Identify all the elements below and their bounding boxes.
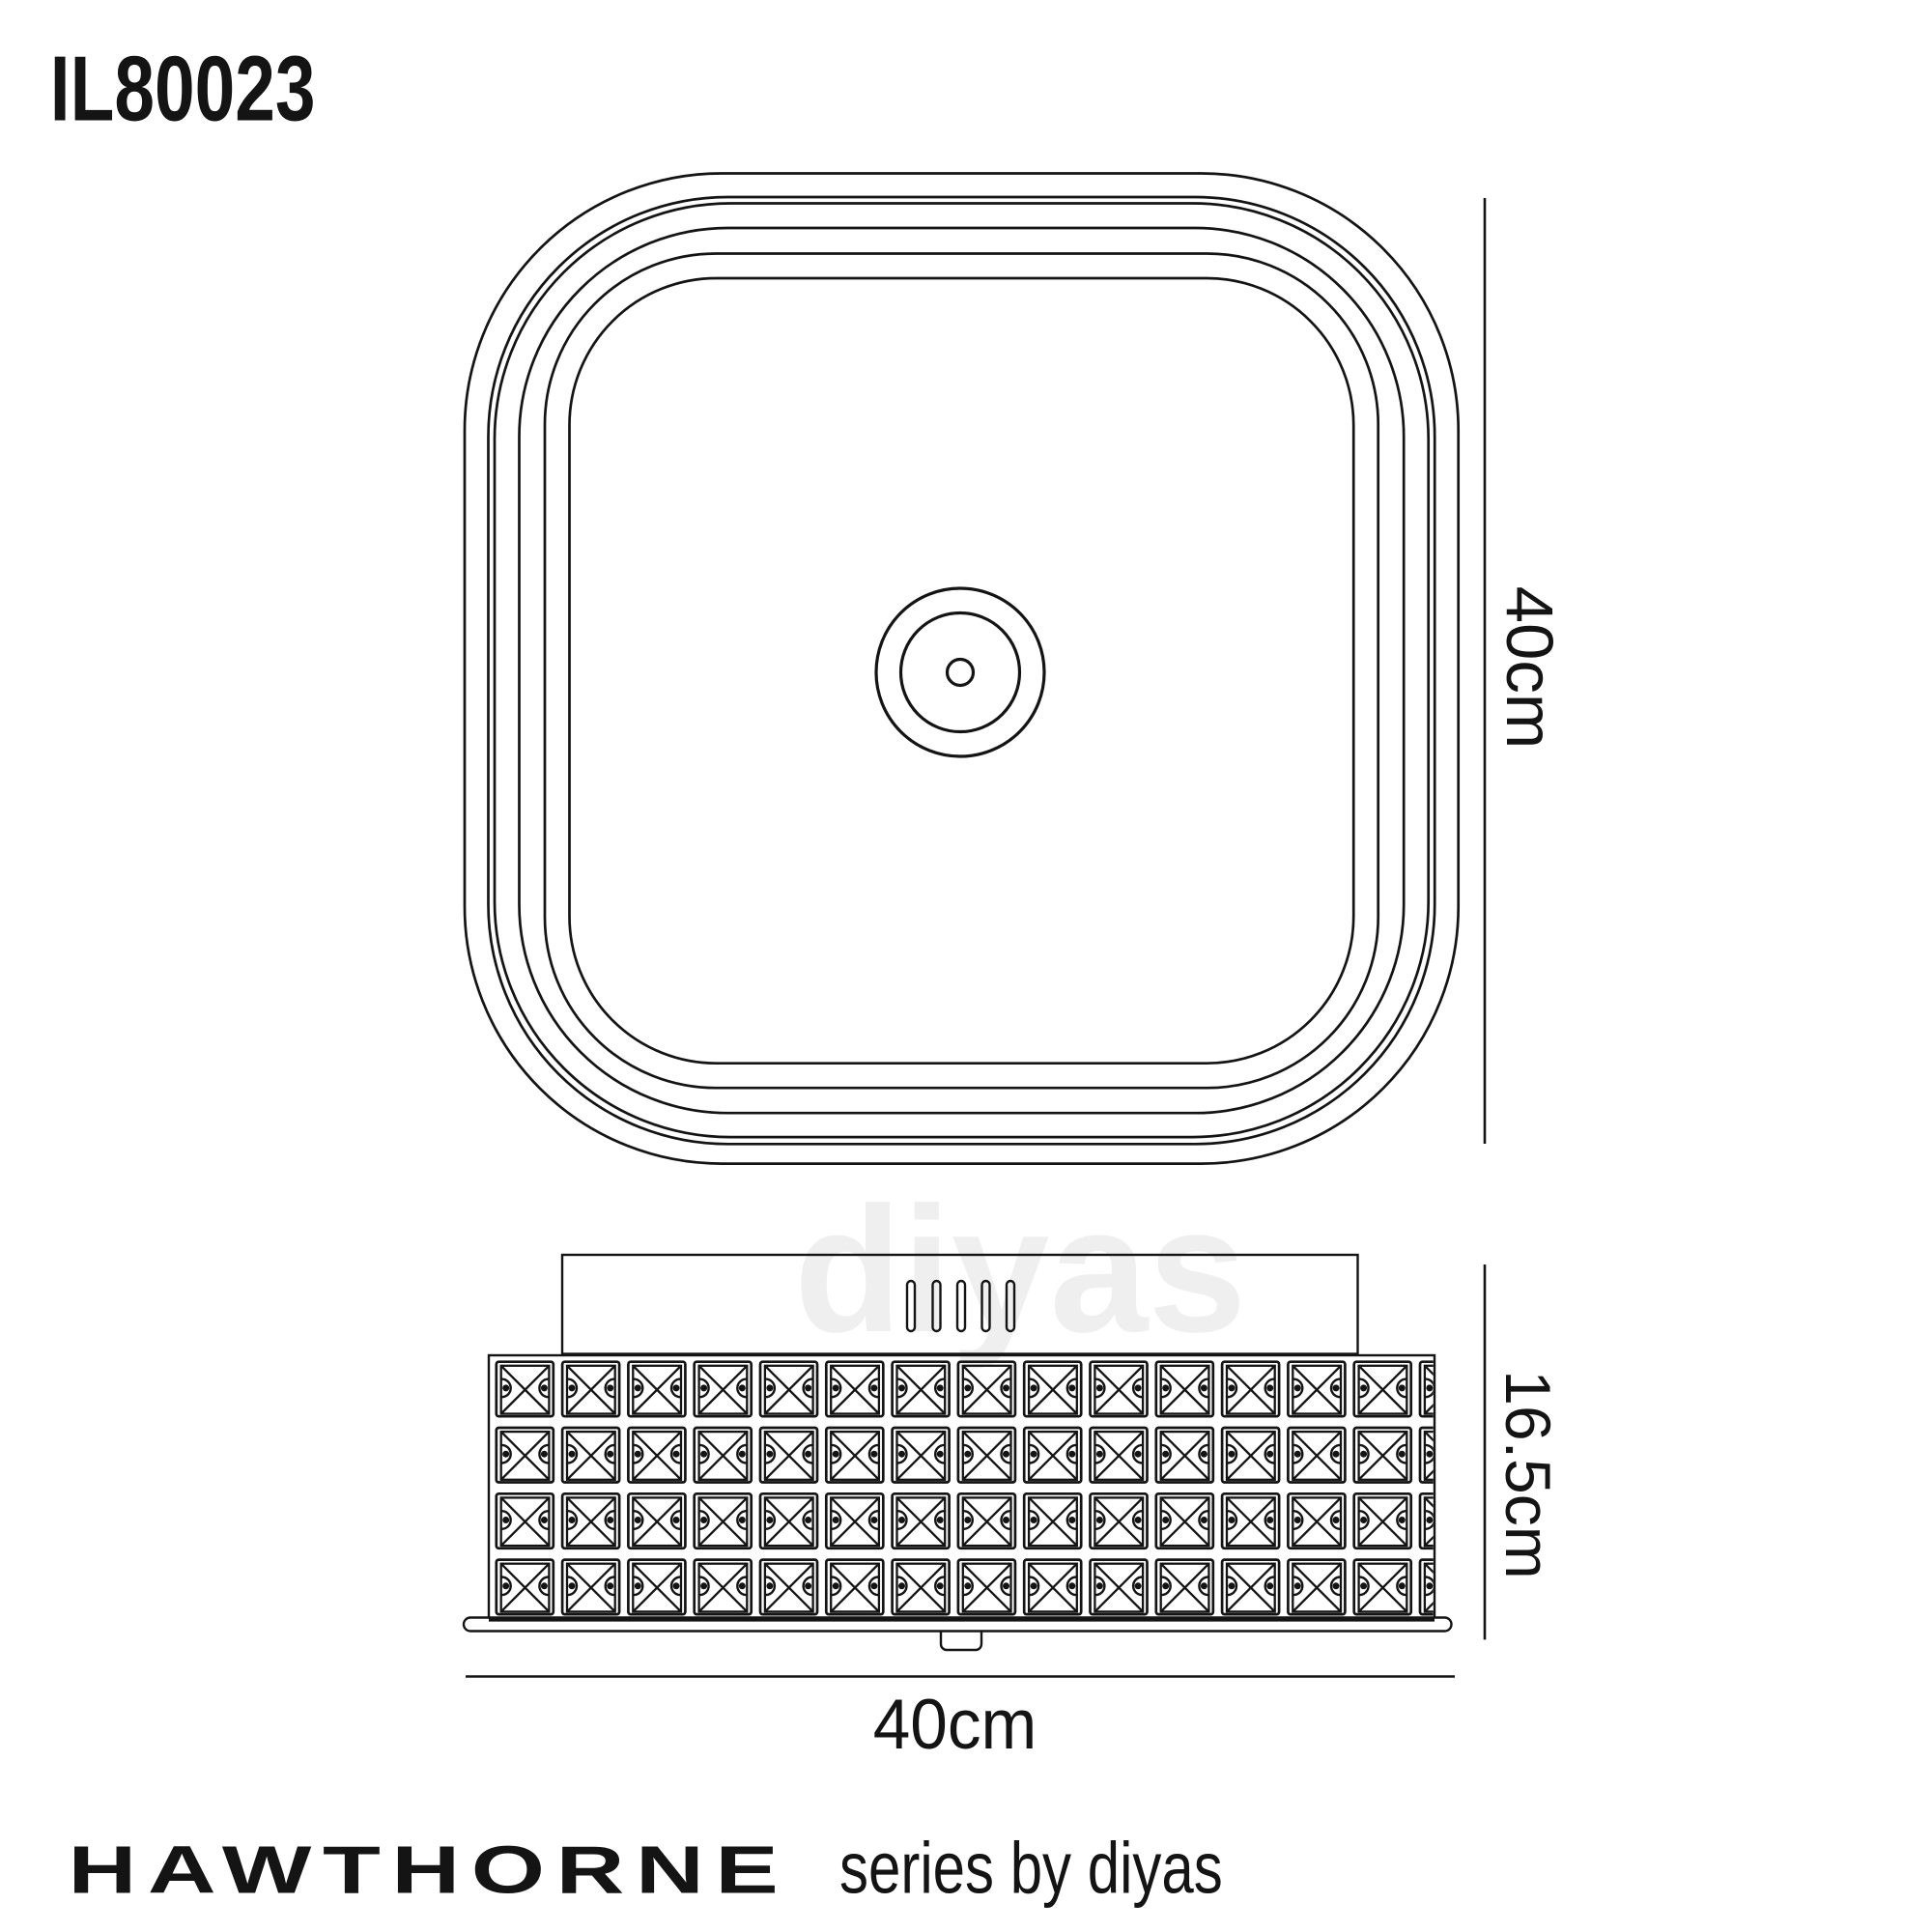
svg-text:16.5cm: 16.5cm <box>1492 1370 1564 1578</box>
svg-text:diyas: diyas <box>794 1170 1246 1370</box>
svg-text:40cm: 40cm <box>1492 586 1567 750</box>
svg-text:IL80023: IL80023 <box>50 38 316 141</box>
svg-text:series by diyas: series by diyas <box>839 1829 1223 1909</box>
svg-text:HAWTHORNE: HAWTHORNE <box>69 1833 790 1908</box>
svg-text:40cm: 40cm <box>873 1686 1037 1764</box>
